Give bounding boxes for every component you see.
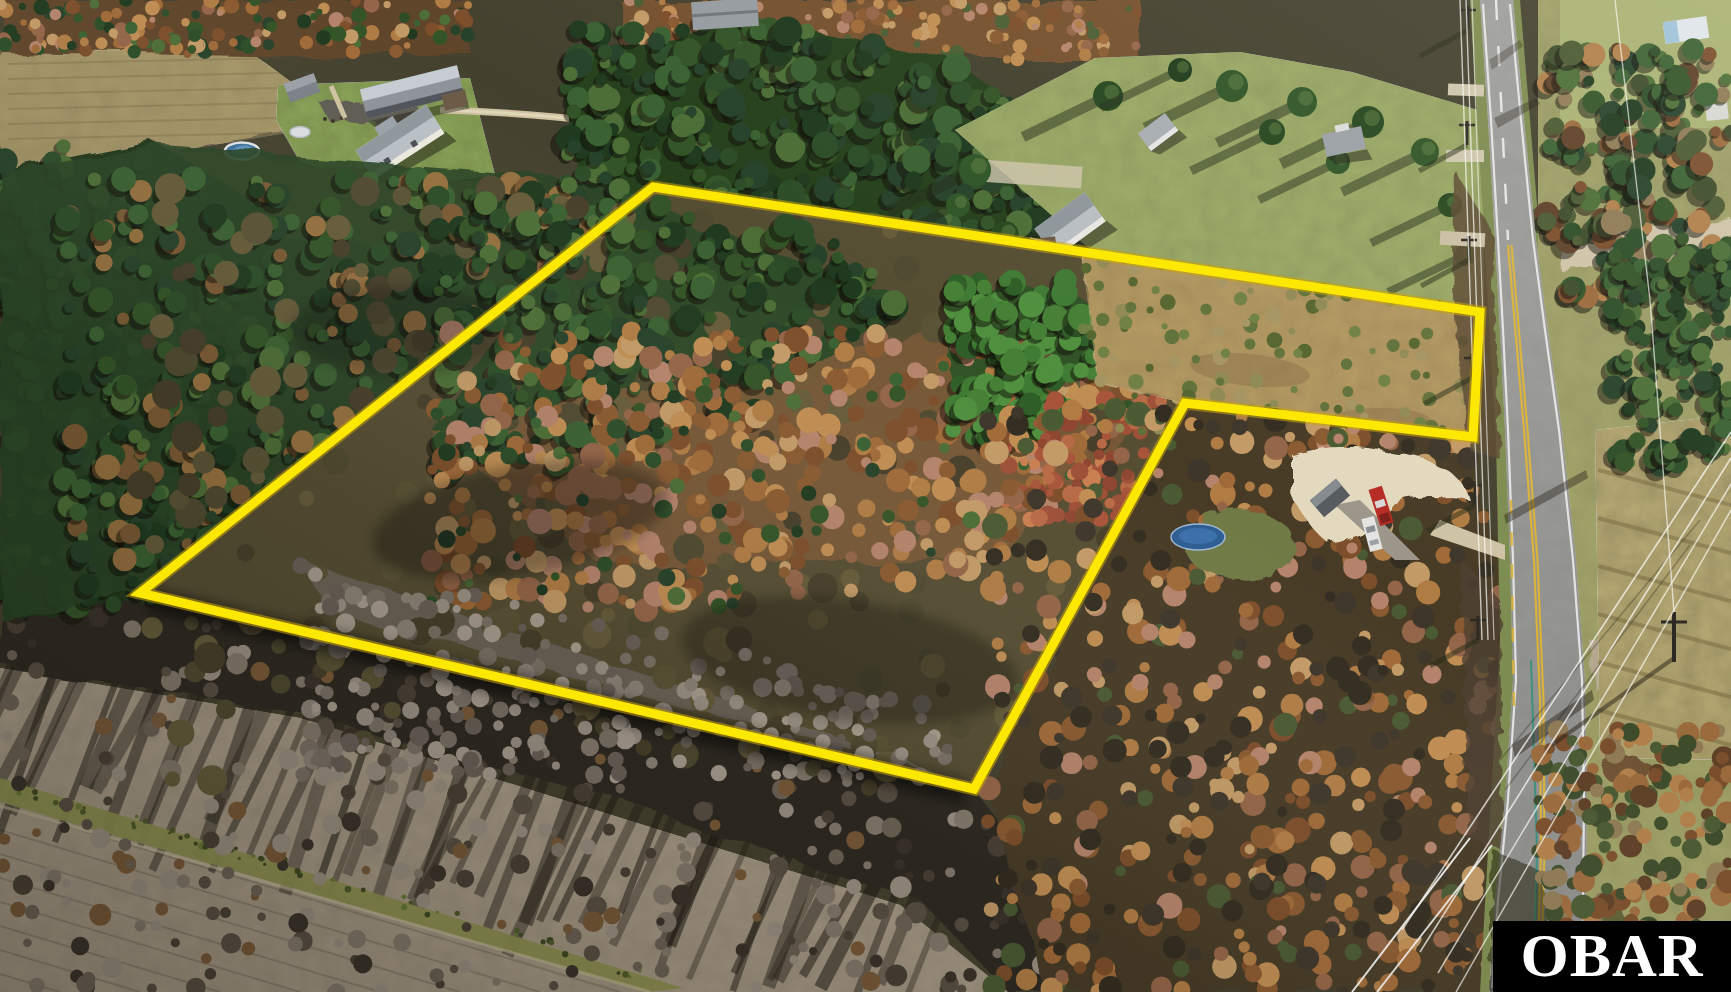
aerial-photo-listing: OBAR	[0, 0, 1731, 992]
aerial-photo	[0, 0, 1731, 992]
obar-watermark: OBAR	[1493, 921, 1731, 992]
obar-watermark-label: OBAR	[1520, 921, 1703, 989]
